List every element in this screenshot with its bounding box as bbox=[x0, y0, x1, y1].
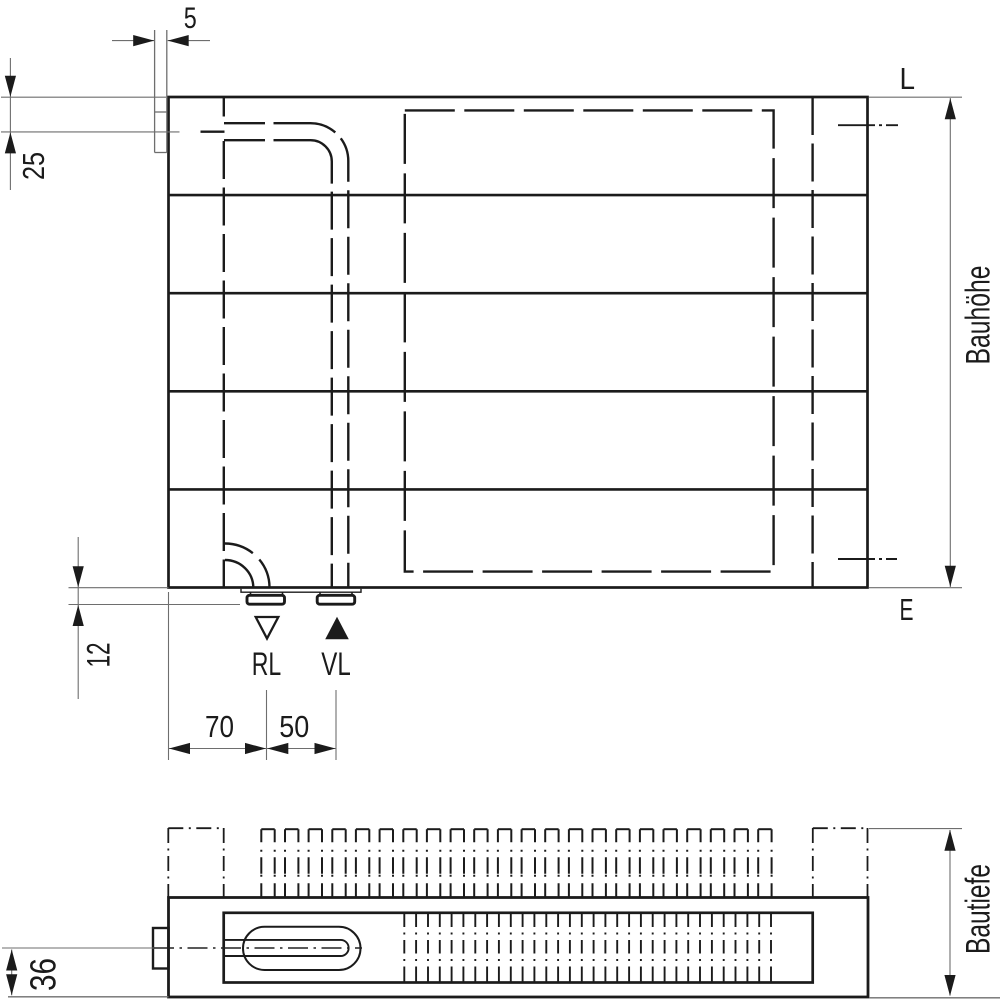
svg-text:12: 12 bbox=[81, 643, 117, 668]
svg-text:Bauhöhe: Bauhöhe bbox=[960, 266, 998, 365]
svg-text:25: 25 bbox=[16, 152, 51, 180]
svg-text:36: 36 bbox=[23, 958, 64, 991]
svg-text:VL: VL bbox=[321, 646, 351, 682]
svg-text:Bautiefe: Bautiefe bbox=[960, 864, 998, 954]
svg-text:5: 5 bbox=[184, 2, 197, 35]
svg-text:RL: RL bbox=[252, 646, 282, 682]
svg-text:E: E bbox=[900, 592, 914, 627]
svg-text:50: 50 bbox=[279, 709, 309, 744]
svg-text:70: 70 bbox=[205, 709, 234, 744]
svg-text:L: L bbox=[900, 61, 916, 96]
